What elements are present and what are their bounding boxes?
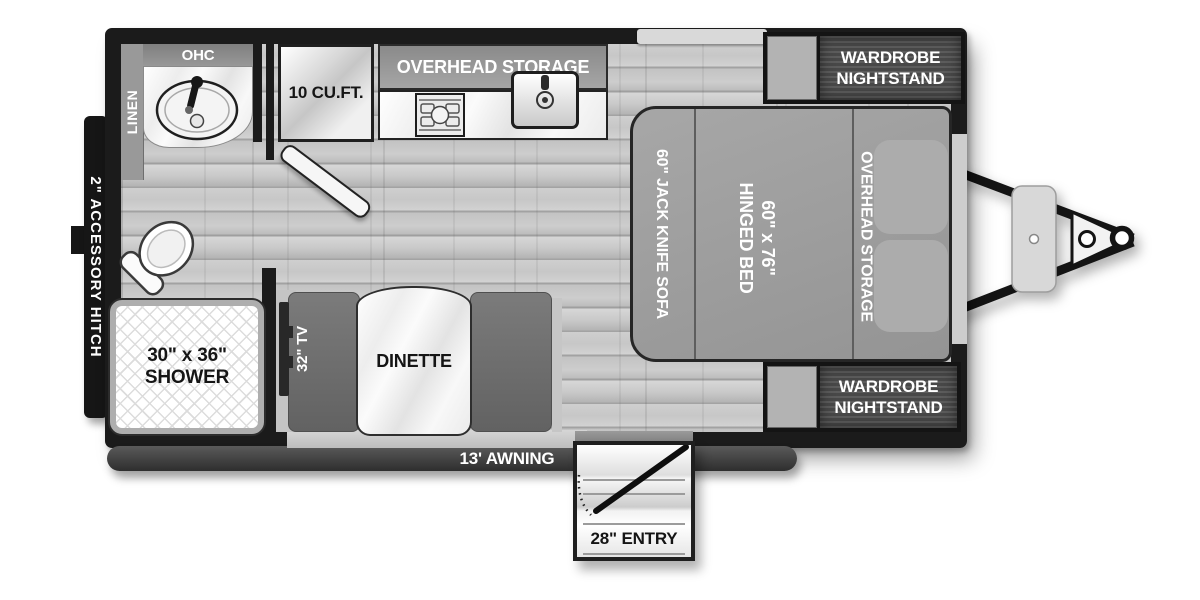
wardrobe-bottom-label: WARDROBE NIGHTSTAND [820, 366, 957, 428]
linen-label: LINEN [124, 52, 140, 172]
shower: 30" x 36" SHOWER [110, 300, 264, 434]
travel-trailer-floorplan: 2" ACCESSORY HITCH 13' AWNING LINEN OHC [0, 0, 1200, 600]
nightstand-bottom [767, 366, 817, 428]
bathroom-wall [253, 44, 262, 142]
bathroom-wall [266, 44, 274, 160]
wardrobe-nightstand-bottom: WARDROBE NIGHTSTAND [763, 362, 961, 432]
wardrobe-text: WARDROBE [839, 376, 938, 397]
shower-label: 30" x 36" SHOWER [116, 306, 258, 428]
bed-divider [694, 109, 696, 359]
overhead-cabinet: OHC [143, 44, 253, 67]
bathroom-wall [262, 268, 276, 434]
wardrobe-top-label: WARDROBE NIGHTSTAND [820, 36, 961, 100]
bed-divider [852, 109, 854, 359]
kitchen-sink [511, 71, 579, 129]
tv-mount [289, 326, 293, 338]
bed-overhead-storage-label: OVERHEAD STORAGE [858, 132, 875, 342]
hitch-tongue-icon [947, 146, 1157, 336]
faucet-icon [514, 74, 576, 126]
cooktop-icon [415, 93, 465, 137]
dinette-table: DINETTE [356, 286, 472, 436]
shower-size-text: 30" x 36" [147, 345, 227, 367]
nightstand-text: NIGHTSTAND [834, 397, 942, 418]
wardrobe-nightstand-top: WARDROBE NIGHTSTAND [763, 32, 965, 104]
dinette-end-panel [552, 298, 562, 432]
nightstand-top [767, 36, 817, 100]
hinged-bed-label: 60" x 76" HINGED BED [735, 143, 779, 333]
nightstand-text: NIGHTSTAND [836, 68, 944, 89]
linen-cabinet: LINEN [121, 44, 144, 180]
bed-type-text: HINGED BED [735, 182, 757, 293]
window-front [951, 134, 967, 344]
entry-steps: 28" ENTRY [573, 441, 695, 561]
bed-size-text: 60" x 76" [757, 200, 779, 275]
tv-mount [289, 356, 293, 368]
bed-cushion [874, 140, 948, 234]
wardrobe-text: WARDROBE [841, 47, 940, 68]
jack-knife-sofa-label: 60" JACK KNIFE SOFA [652, 114, 670, 354]
window-top [637, 29, 767, 44]
dinette-bench-right [470, 292, 552, 432]
tv-screen [279, 302, 289, 396]
refrigerator: 10 CU.FT. [278, 44, 374, 142]
entry-door-swing-icon [577, 445, 691, 557]
tv-label: 32" TV [294, 301, 310, 397]
vanity-sink-icon [150, 68, 244, 144]
bed-cushion [874, 240, 948, 332]
toilet-icon [102, 193, 222, 313]
shower-text: SHOWER [145, 367, 229, 389]
